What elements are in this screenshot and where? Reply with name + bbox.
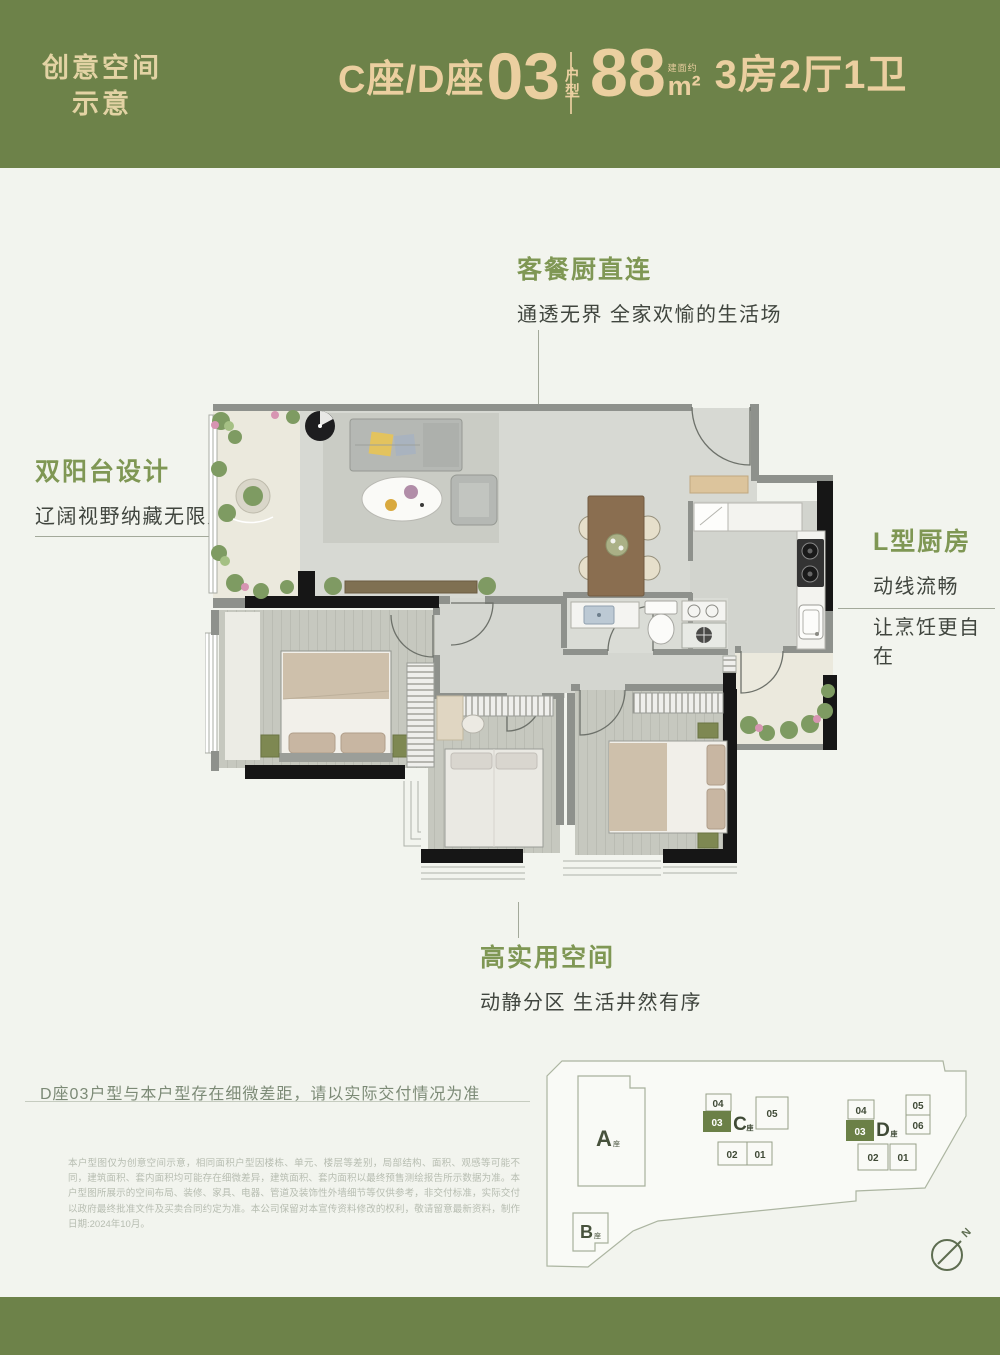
- wardrobe: [633, 693, 723, 713]
- annotation-kitchen-line1: 动线流畅: [873, 570, 1000, 599]
- header-divider: [570, 52, 572, 114]
- building-d-label: D: [876, 1120, 890, 1141]
- area-unit: m²: [668, 73, 701, 99]
- annotation-kitchen-line2: 让烹饪更自在: [873, 611, 1000, 669]
- window-master-bay: [205, 633, 217, 753]
- svg-text:01: 01: [897, 1153, 909, 1164]
- svg-text:03: 03: [711, 1118, 723, 1129]
- disclaimer-text: 本户型图仅为创意空间示意，相同面积户型因楼栋、单元、楼层等差别，局部结构、面积、…: [68, 1156, 520, 1232]
- footer-band: [0, 1297, 1000, 1355]
- area-unit-column: 建面约 m²: [668, 63, 701, 105]
- fridge: [694, 503, 728, 531]
- svg-text:01: 01: [754, 1150, 766, 1161]
- svg-text:02: 02: [726, 1150, 738, 1161]
- annotation-kitchen-title: L型厨房: [873, 522, 1000, 558]
- nightstand: [698, 833, 718, 848]
- site-plan: A 座 B 座 04 03 05 02 01 C 座 04 03 05 06 0…: [530, 1058, 1000, 1303]
- plant: [324, 577, 342, 595]
- shoe-cabinet: [690, 476, 748, 493]
- annotation-space-subtitle: 动静分区 生活井然有序: [480, 986, 702, 1015]
- stove: [797, 539, 824, 587]
- annotation-dining-subtitle: 通透无界 全家欢愉的生活场: [517, 298, 782, 327]
- unit-number: 03: [486, 46, 559, 107]
- nightstand: [698, 723, 718, 738]
- kitchen-sink: [799, 605, 823, 639]
- wardrobe: [463, 696, 553, 716]
- svg-text:04: 04: [855, 1106, 867, 1117]
- window-balcony-bottom: [723, 656, 736, 673]
- watermark-line2: 示意: [42, 86, 162, 122]
- building-a-label: A: [596, 1126, 612, 1151]
- equipment-icon: [305, 411, 335, 441]
- master-bed: [279, 651, 393, 762]
- annotation-kitchen: L型厨房 动线流畅 让烹饪更自在: [873, 522, 1000, 669]
- armchair: [451, 475, 497, 525]
- header-band: 创意空间 示意 C座/D座 03 户 型 88 建面约 m² 3房2厅1卫: [0, 0, 1000, 168]
- svg-text:05: 05: [766, 1109, 778, 1120]
- building-a: A 座: [578, 1076, 645, 1186]
- master-bedroom: [261, 651, 434, 767]
- nightstand: [261, 735, 279, 757]
- coffee-table: [362, 477, 442, 521]
- annotation-space: 高实用空间 动静分区 生活井然有序: [480, 938, 702, 1015]
- bed: [609, 741, 727, 833]
- washer-counter: [682, 601, 726, 621]
- centerpiece: [606, 534, 628, 556]
- layout-spec: 3房2厅1卫: [715, 42, 908, 105]
- bed: [445, 749, 543, 847]
- leader-line-kitchen: [838, 608, 995, 609]
- wardrobe: [407, 663, 434, 767]
- area-spec: 88 建面约 m² 3房2厅1卫: [590, 42, 907, 105]
- floor-plan: [205, 393, 855, 908]
- svg-text:座: 座: [594, 1231, 601, 1240]
- svg-text:座: 座: [747, 1123, 754, 1132]
- shower: [682, 623, 726, 648]
- svg-text:02: 02: [867, 1153, 879, 1164]
- tv-console: [345, 581, 477, 593]
- master-bay-floor: [225, 612, 260, 760]
- desk-chair: [462, 715, 484, 733]
- desk: [437, 696, 463, 740]
- building-c-label: C: [733, 1114, 747, 1135]
- svg-text:座: 座: [613, 1139, 620, 1148]
- building-b-label: B: [580, 1222, 593, 1242]
- compass-icon: N: [932, 1226, 974, 1270]
- watermark-line1: 创意空间: [42, 50, 162, 86]
- sofa: [350, 419, 462, 471]
- svg-text:05: 05: [912, 1101, 924, 1112]
- note-rule: [25, 1101, 530, 1102]
- annotation-space-title: 高实用空间: [480, 938, 702, 974]
- flowers: [404, 485, 418, 499]
- annotation-dining-title: 客餐厨直连: [517, 250, 782, 286]
- creative-watermark: 创意空间 示意: [42, 50, 162, 122]
- compass-north-label: N: [960, 1226, 974, 1240]
- toilet: [645, 601, 677, 644]
- unit-type-stack: 户 型: [565, 68, 580, 107]
- unit-suffix-bottom: 型: [565, 84, 580, 100]
- sunflower: [385, 499, 397, 511]
- svg-text:06: 06: [912, 1121, 924, 1132]
- area-number: 88: [590, 42, 666, 105]
- wash-basin: [571, 602, 639, 628]
- svg-text:03: 03: [854, 1127, 866, 1138]
- unit-prefix: C座/D座: [338, 61, 484, 107]
- svg-text:座: 座: [891, 1129, 898, 1138]
- annotation-dining: 客餐厨直连 通透无界 全家欢愉的生活场: [517, 250, 782, 327]
- unit-label: 04: [712, 1099, 724, 1110]
- plant: [478, 577, 496, 595]
- unit-title: C座/D座 03 户 型: [338, 46, 580, 107]
- unit-suffix-top: 户: [565, 68, 580, 84]
